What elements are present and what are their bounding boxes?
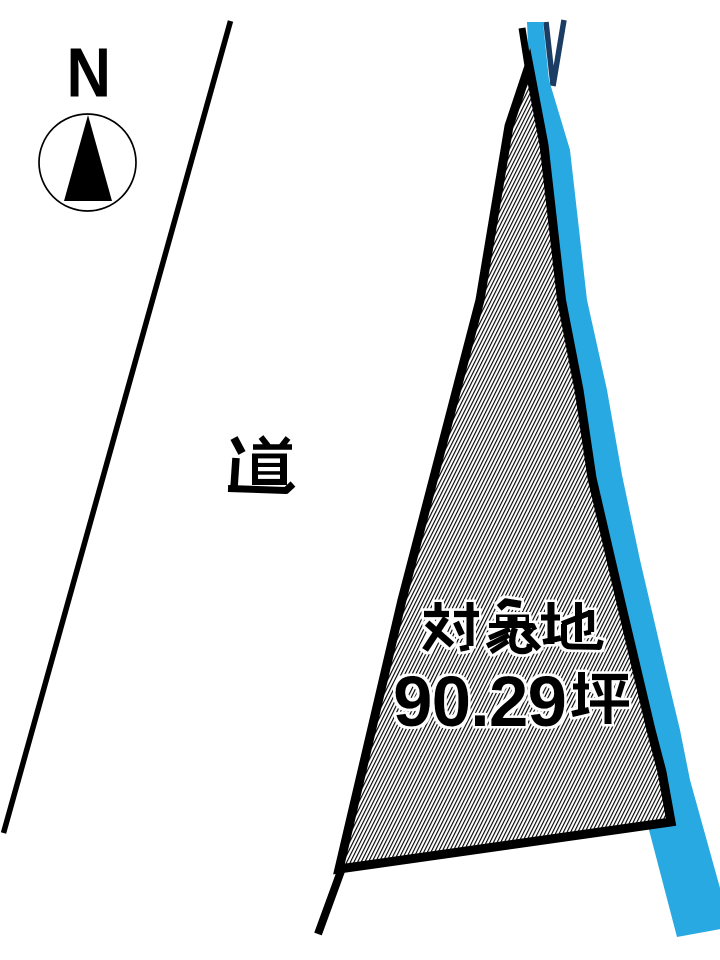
svg-text:N: N [67,34,112,112]
svg-text:90.29: 90.29 [393,663,567,742]
